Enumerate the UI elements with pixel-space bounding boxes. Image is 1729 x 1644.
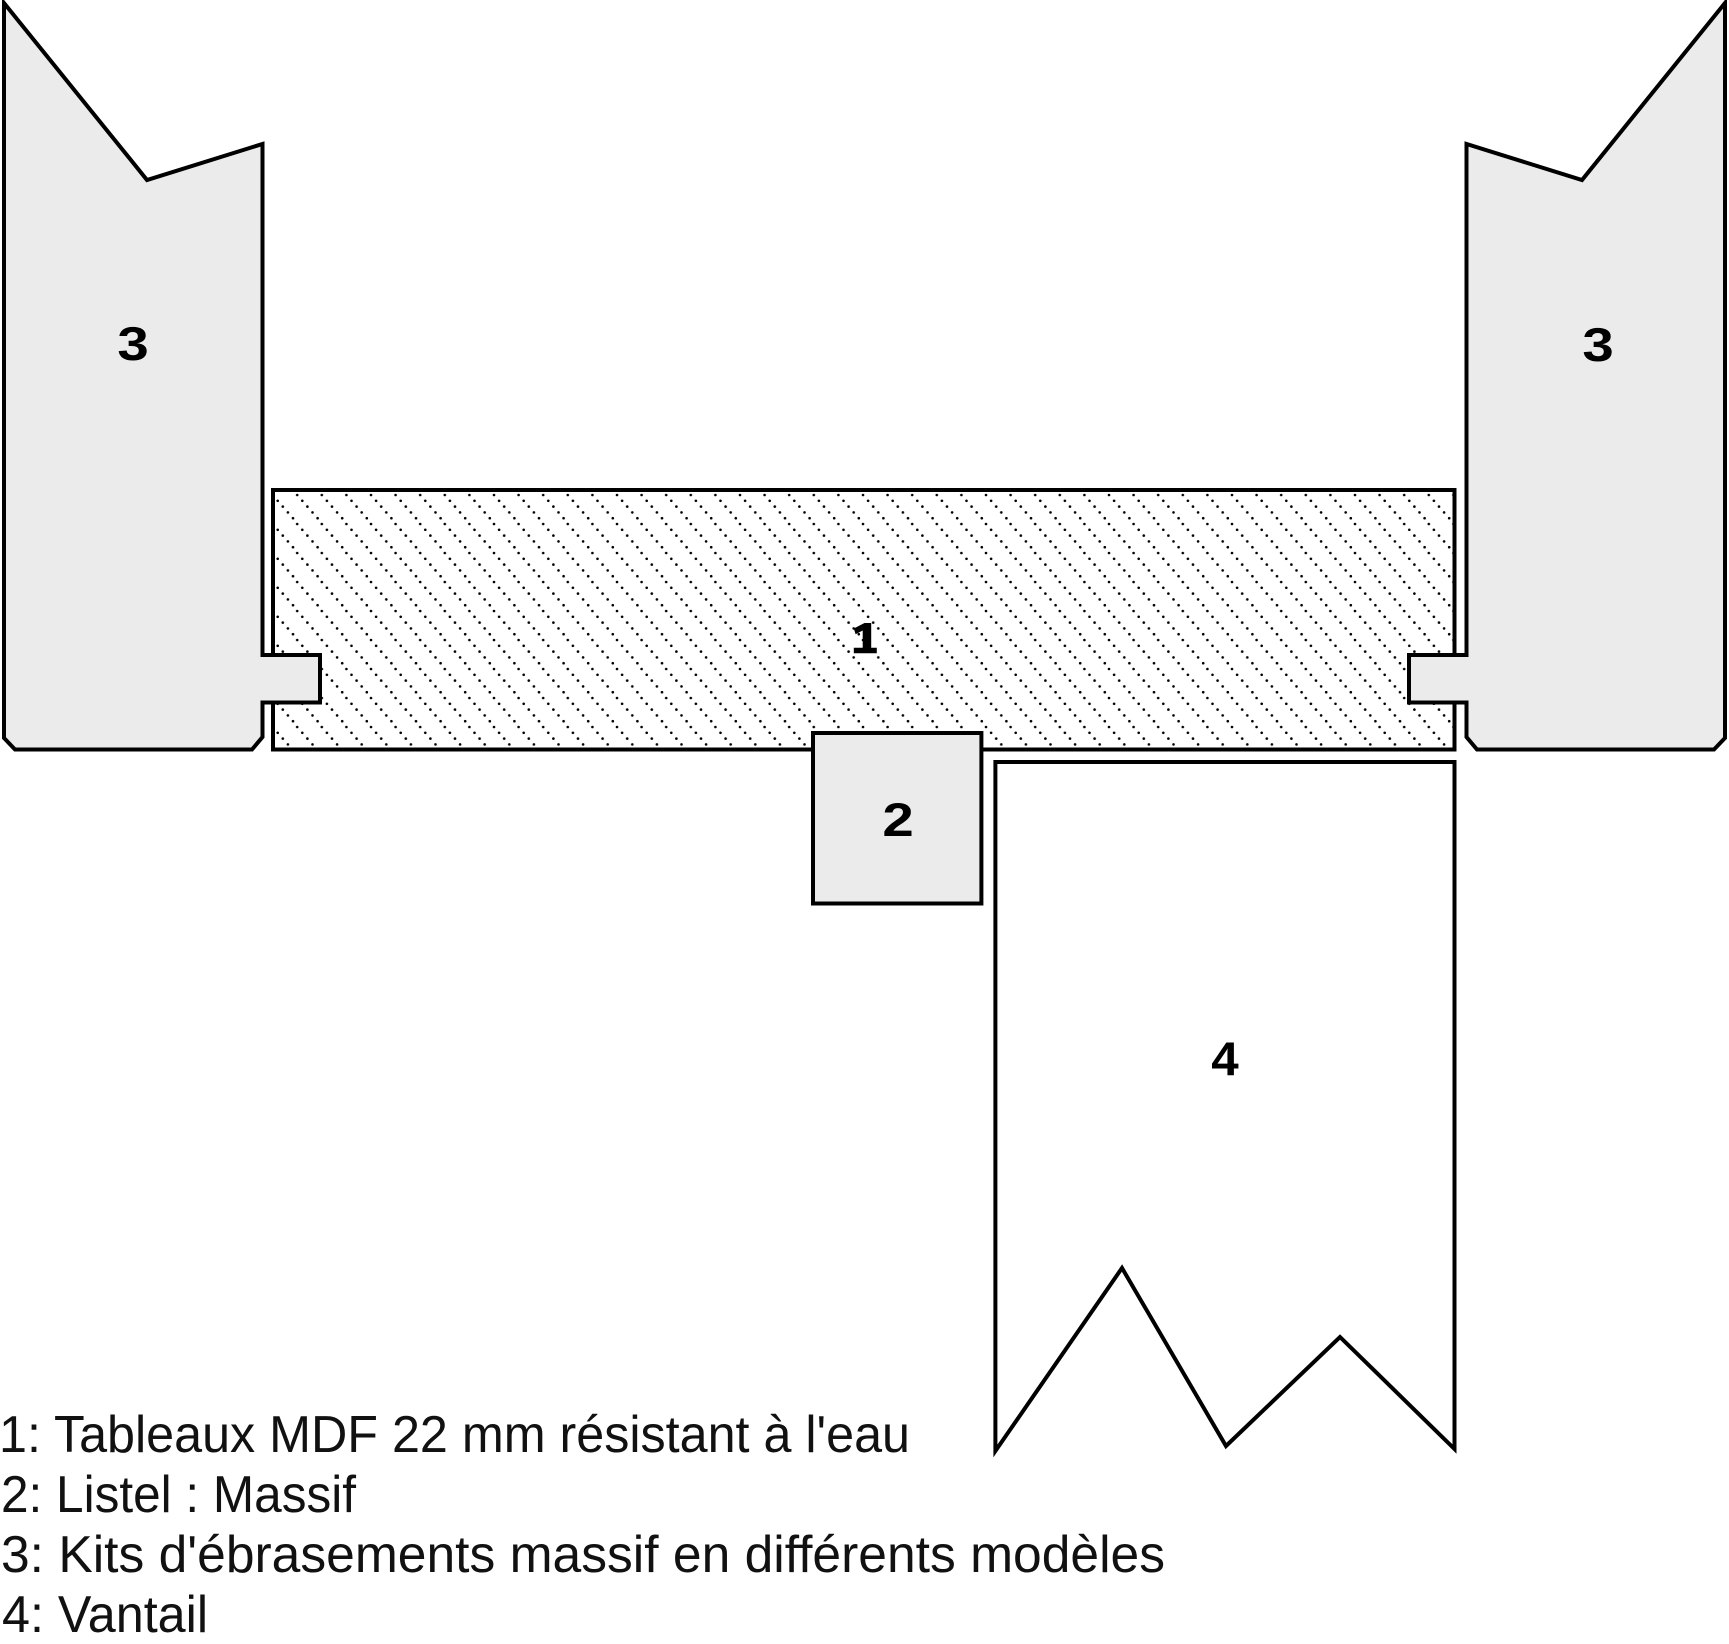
- svg-text:3: 3: [1582, 319, 1613, 372]
- svg-text:2: Listel : Massif: 2: Listel : Massif: [1, 1466, 357, 1524]
- svg-text:2: 2: [882, 794, 913, 847]
- svg-text:4: Vantail: 4: Vantail: [2, 1586, 208, 1644]
- svg-text:1: Tableaux MDF 22 mm résistan: 1: Tableaux MDF 22 mm résistant à l'eau: [0, 1406, 910, 1464]
- svg-text:4: 4: [1211, 1033, 1239, 1086]
- svg-text:3: 3: [117, 318, 148, 371]
- svg-text:3: Kits d'ébrasements massif e: 3: Kits d'ébrasements massif en différen…: [1, 1526, 1165, 1584]
